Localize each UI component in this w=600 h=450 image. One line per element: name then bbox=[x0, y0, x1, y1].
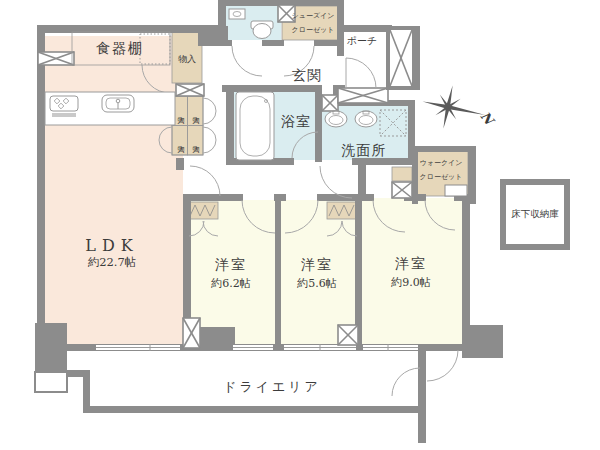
floorplan: 食器棚 物入 物入 物入 物入 物入 シューズイン クローゼット ポーチ 玄関 … bbox=[0, 0, 600, 450]
toilet-door bbox=[232, 46, 262, 76]
bedroom-90-floor bbox=[362, 198, 462, 344]
washroom-sink-icon bbox=[325, 111, 347, 127]
walkin-closet-label-line1: ウォークイン bbox=[420, 160, 463, 167]
entrance-label: 玄関 bbox=[292, 68, 322, 82]
walkin-closet-label-line2: クローゼット bbox=[420, 174, 463, 181]
louver-window-box bbox=[38, 52, 74, 65]
pipe-space-icon bbox=[322, 95, 338, 111]
elevator-shaft-box bbox=[388, 28, 414, 88]
porch-label: ポーチ bbox=[347, 36, 377, 46]
small-closet-box bbox=[392, 167, 412, 181]
storage-cell-label: 物入 bbox=[192, 139, 199, 141]
walkin-closet-shelf bbox=[445, 185, 467, 196]
ldk-floor bbox=[45, 36, 183, 344]
shoe-closet-label-line1: シューズイン bbox=[292, 13, 335, 20]
storage-cell-doors-right bbox=[203, 98, 216, 153]
dry-area-door bbox=[392, 368, 420, 396]
bedroom-62-area-label: 約6.2帖 bbox=[211, 278, 251, 289]
bedroom-90-name-label: 洋室 bbox=[395, 256, 427, 270]
dry-area-label: ドライエリア bbox=[223, 380, 321, 393]
washroom-label: 洗面所 bbox=[342, 143, 387, 157]
dry-area-door bbox=[427, 350, 458, 381]
compass-icon bbox=[423, 86, 486, 129]
hatch-box bbox=[176, 84, 204, 96]
ldk-name-label: LDK bbox=[85, 238, 138, 254]
bedroom-90-area-label: 約9.0帖 bbox=[391, 277, 431, 288]
ldk-area-label: 約22.7帖 bbox=[88, 257, 137, 269]
entrance-door bbox=[346, 58, 376, 88]
pipe-space-icon bbox=[183, 318, 200, 348]
storage-cell-label: 物入 bbox=[177, 139, 184, 141]
storage-top-label: 物入 bbox=[178, 55, 196, 64]
bathroom-label: 浴室 bbox=[281, 114, 311, 128]
washroom-door bbox=[320, 166, 352, 198]
storage-cell-label: 物入 bbox=[192, 110, 199, 112]
stove-icon bbox=[50, 96, 78, 117]
underfloor-storage-label: 床下収納庫 bbox=[511, 209, 559, 219]
bathtub-icon bbox=[236, 92, 274, 160]
pipe-space-icon bbox=[392, 182, 412, 198]
bedroom-56-name-label: 洋室 bbox=[301, 257, 333, 271]
ldk-door bbox=[190, 166, 220, 196]
cupboard-label: 食器棚 bbox=[96, 41, 144, 55]
wall-outline-box bbox=[35, 372, 67, 392]
bedroom-56-floor bbox=[281, 200, 357, 344]
porch-louver-box bbox=[338, 88, 388, 103]
kitchen-sink-icon bbox=[102, 95, 134, 112]
windows bbox=[96, 344, 418, 351]
bedroom-56-area-label: 約5.6帖 bbox=[297, 278, 337, 289]
pipe-space-icon bbox=[338, 325, 358, 345]
storage-cell-label: 物入 bbox=[177, 110, 184, 112]
bedroom-62-name-label: 洋室 bbox=[215, 257, 247, 271]
washroom-sink-icon bbox=[355, 111, 377, 127]
shoe-closet-label-line2: クローゼット bbox=[292, 27, 335, 34]
